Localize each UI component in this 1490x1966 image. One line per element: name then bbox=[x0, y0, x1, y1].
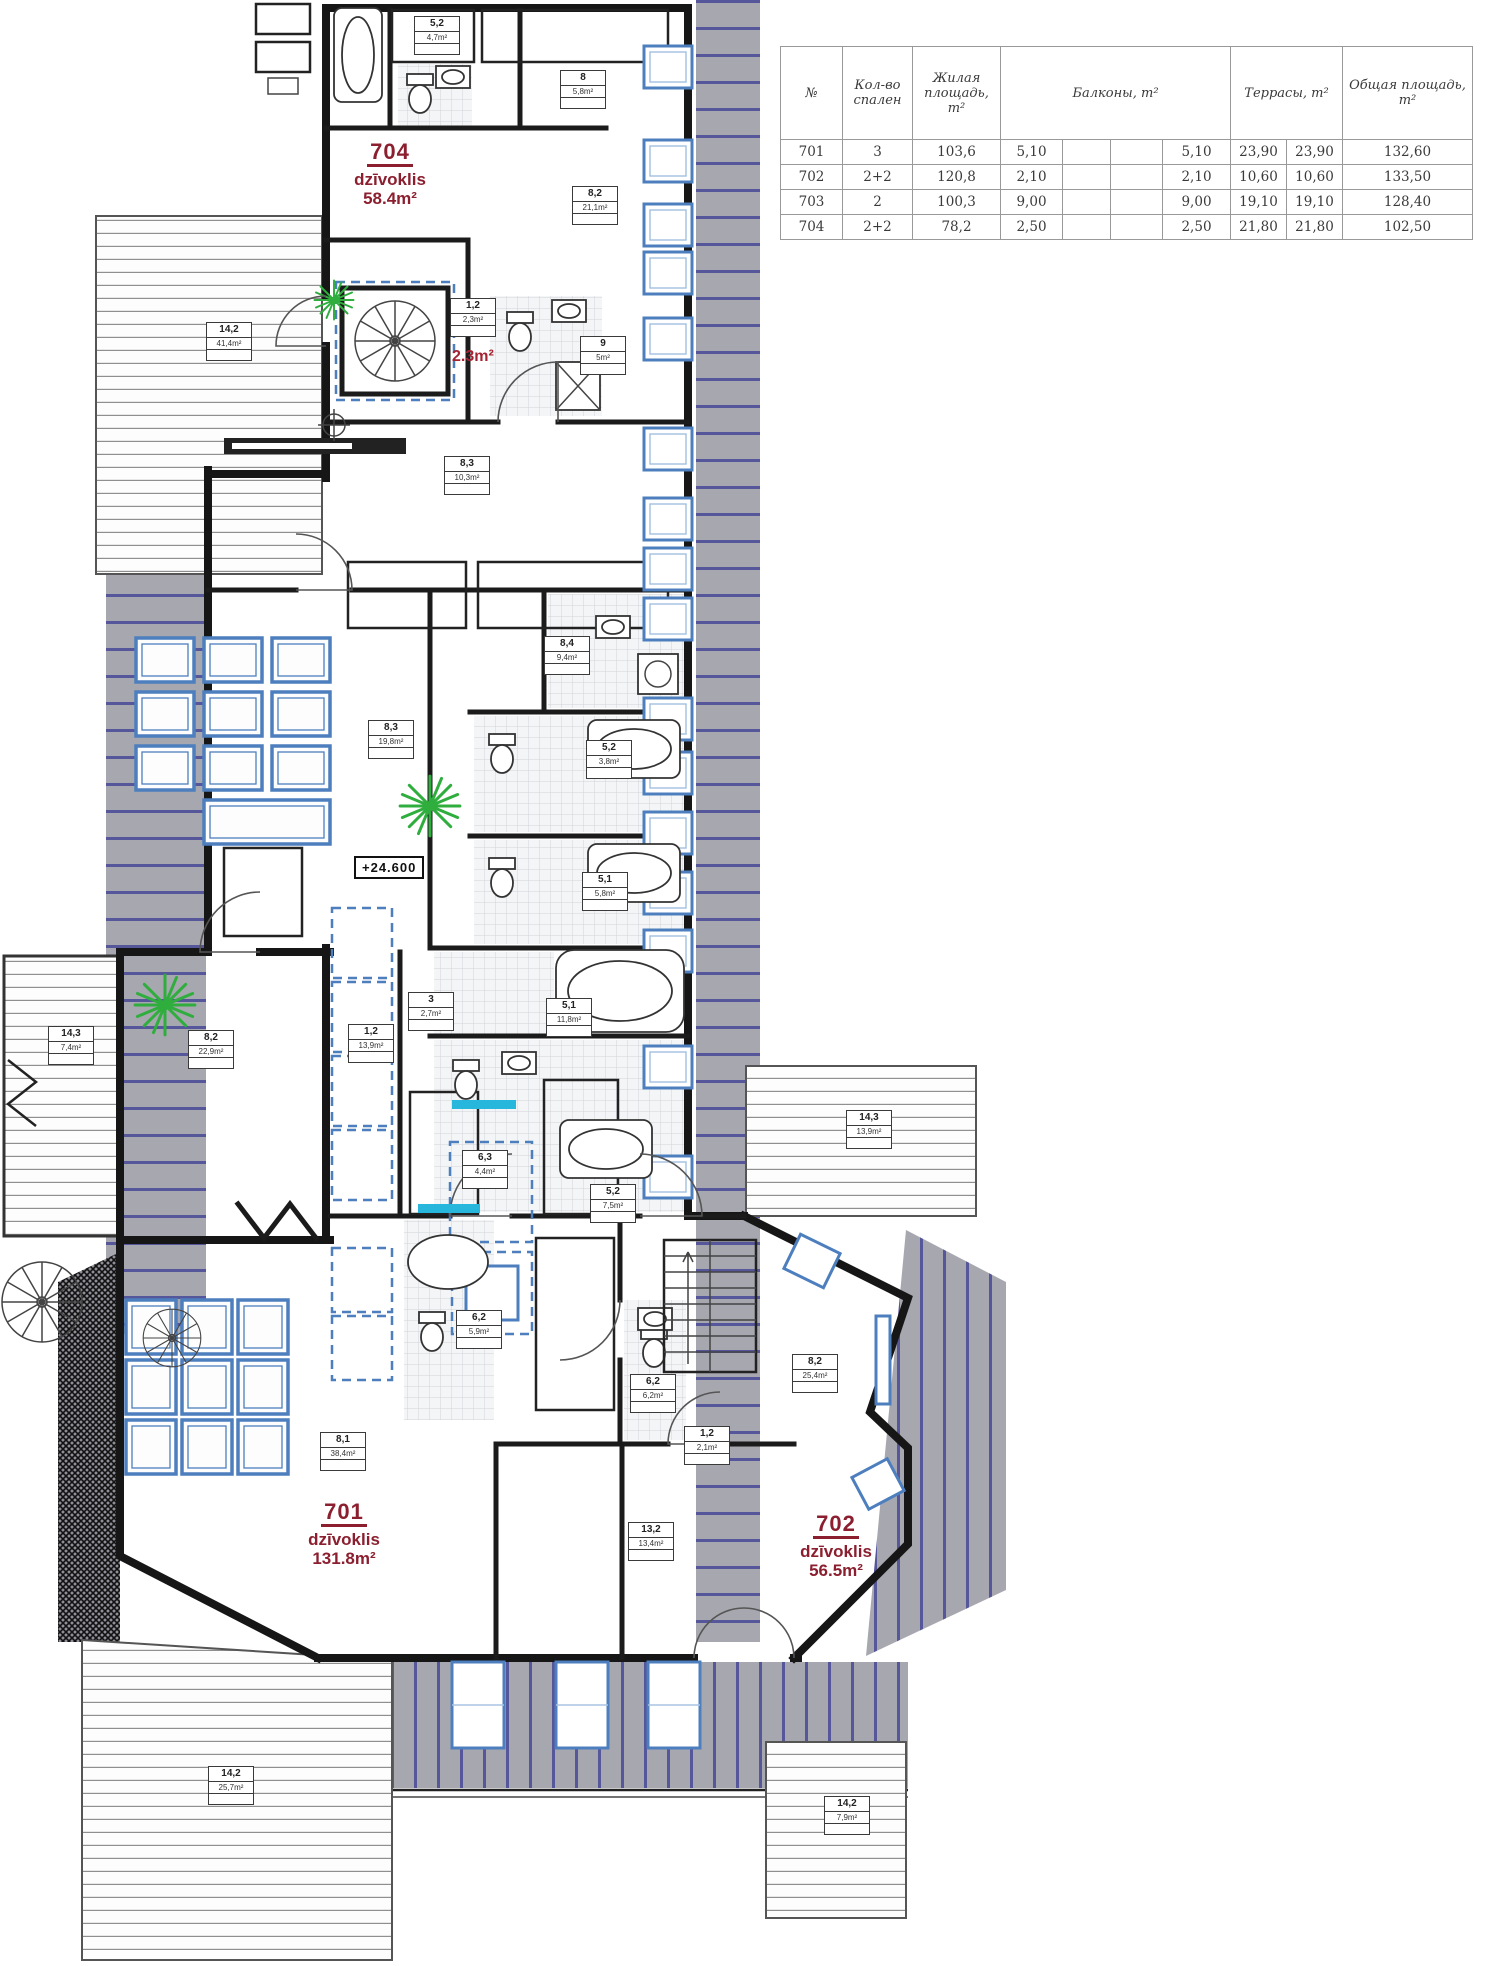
cell-bedrooms: 2+2 bbox=[843, 215, 913, 240]
sink-icon bbox=[436, 66, 470, 88]
room-label-8-3-5: 8,310,3m² bbox=[444, 456, 490, 495]
room-label-5-1-10: 5,15,8m² bbox=[582, 872, 628, 911]
area-table: № Кол-во спален Жилая площадь, m² Балкон… bbox=[780, 46, 1473, 240]
header-total: Общая площадь, m² bbox=[1343, 47, 1473, 140]
apartment-type: dzīvoklis bbox=[328, 170, 452, 189]
room-label-6-2-19: 6,25,9m² bbox=[456, 1310, 502, 1349]
cell-living: 78,2 bbox=[913, 215, 1001, 240]
oval-tub-icon bbox=[408, 1235, 488, 1289]
apartment-label-704: 704 dzīvoklis 58.4m² bbox=[328, 140, 452, 209]
toilet-icon bbox=[489, 858, 515, 897]
cell-balc2 bbox=[1063, 140, 1111, 165]
apartment-label-701: 701 dzīvoklis 131.8m² bbox=[282, 1500, 406, 1569]
room-label-1-2-12: 1,213,9m² bbox=[348, 1024, 394, 1063]
room-label-9-4: 95m² bbox=[580, 336, 626, 375]
cyan-marker bbox=[452, 1100, 516, 1109]
room-label-6-2-21: 6,26,2m² bbox=[630, 1374, 676, 1413]
cell-terr2: 10,60 bbox=[1287, 165, 1343, 190]
spiral-stair-small bbox=[143, 1309, 201, 1367]
room-label-14-2-25: 14,225,7m² bbox=[208, 1766, 254, 1805]
toilet-icon bbox=[419, 1312, 445, 1351]
page: 704 dzīvoklis 58.4m² 701 dzīvoklis 131.8… bbox=[0, 0, 1490, 1966]
room-label-8-2-20: 8,225,4m² bbox=[792, 1354, 838, 1393]
room-label-1-2-22: 1,22,1m² bbox=[684, 1426, 730, 1465]
cell-balc1: 2,10 bbox=[1001, 165, 1063, 190]
cell-terr1: 10,60 bbox=[1231, 165, 1287, 190]
apartment-type: dzīvoklis bbox=[772, 1542, 900, 1561]
cell-terr2: 23,90 bbox=[1287, 140, 1343, 165]
apartment-area: 56.5m² bbox=[772, 1561, 900, 1581]
cell-total: 128,40 bbox=[1343, 190, 1473, 215]
cell-living: 120,8 bbox=[913, 165, 1001, 190]
bathtub-icon bbox=[560, 1120, 652, 1178]
sink-icon bbox=[638, 1308, 672, 1330]
cell-bedrooms: 2 bbox=[843, 190, 913, 215]
hatched-edge bbox=[58, 1252, 120, 1642]
cell-balc1: 5,10 bbox=[1001, 140, 1063, 165]
cell-balc1: 2,50 bbox=[1001, 215, 1063, 240]
apartment-type: dzīvoklis bbox=[282, 1530, 406, 1549]
cell-balc1: 9,00 bbox=[1001, 190, 1063, 215]
room-label-8-1: 85,8m² bbox=[560, 70, 606, 109]
room-label-5-1-15: 5,111,8m² bbox=[546, 998, 592, 1037]
cell-living: 100,3 bbox=[913, 190, 1001, 215]
cell-balc-total: 5,10 bbox=[1163, 140, 1231, 165]
roof-strip-right bbox=[696, 0, 760, 1642]
elevation-marker: +24.600 bbox=[354, 856, 424, 879]
room-label-6-3-16: 6,34,4m² bbox=[462, 1150, 508, 1189]
floor-plan-drawing bbox=[0, 0, 1012, 1966]
spiral-stair-top bbox=[355, 301, 435, 381]
table-row-703: 703 2 100,3 9,00 9,00 19,10 19,10 128,40 bbox=[781, 190, 1473, 215]
table-row-702: 702 2+2 120,8 2,10 2,10 10,60 10,60 133,… bbox=[781, 165, 1473, 190]
room-label-14-2-26: 14,27,9m² bbox=[824, 1796, 870, 1835]
room-label-8-3-8: 8,319,8m² bbox=[368, 720, 414, 759]
table-row-701: 701 3 103,6 5,10 5,10 23,90 23,90 132,60 bbox=[781, 140, 1473, 165]
apartment-number: 702 bbox=[813, 1512, 859, 1539]
cell-balc-total: 9,00 bbox=[1163, 190, 1231, 215]
cell-balc3 bbox=[1111, 165, 1163, 190]
floor-plan: 704 dzīvoklis 58.4m² 701 dzīvoklis 131.8… bbox=[0, 0, 1012, 1966]
room-label-8-2-13: 8,222,9m² bbox=[188, 1030, 234, 1069]
apartment-area: 58.4m² bbox=[328, 189, 452, 209]
toilet-icon bbox=[489, 734, 515, 773]
room-label-5-2-0: 5,24,7m² bbox=[414, 16, 460, 55]
cell-num: 702 bbox=[781, 165, 843, 190]
room-label-14-3-14: 14,37,4m² bbox=[48, 1026, 94, 1065]
stair-area-note: 2.3m² bbox=[452, 348, 494, 366]
room-label-8-4-7: 8,49,4m² bbox=[544, 636, 590, 675]
spiral-stair-balcony bbox=[2, 1262, 82, 1342]
sink-icon bbox=[502, 1052, 536, 1074]
cell-balc3 bbox=[1111, 140, 1163, 165]
apartment-area: 131.8m² bbox=[282, 1549, 406, 1569]
cell-bedrooms: 2+2 bbox=[843, 165, 913, 190]
header-num: № bbox=[781, 47, 843, 140]
cell-terr1: 19,10 bbox=[1231, 190, 1287, 215]
roof-bay-right bbox=[866, 1230, 1006, 1656]
room-label-14-3-18: 14,313,9m² bbox=[846, 1110, 892, 1149]
cell-bedrooms: 3 bbox=[843, 140, 913, 165]
sink-icon bbox=[596, 616, 630, 638]
cell-balc2 bbox=[1063, 190, 1111, 215]
plant-icon bbox=[135, 975, 195, 1035]
table-header-row: № Кол-во спален Жилая площадь, m² Балкон… bbox=[781, 47, 1473, 140]
room-label-8-2-2: 8,221,1m² bbox=[572, 186, 618, 225]
cell-balc3 bbox=[1111, 215, 1163, 240]
cyan-marker bbox=[418, 1204, 480, 1213]
cell-num: 703 bbox=[781, 190, 843, 215]
plant-icon bbox=[315, 281, 354, 320]
cell-terr2: 19,10 bbox=[1287, 190, 1343, 215]
room-label-3-11: 32,7m² bbox=[408, 992, 454, 1031]
cell-total: 133,50 bbox=[1343, 165, 1473, 190]
cell-terr1: 23,90 bbox=[1231, 140, 1287, 165]
skylight-grid-lower bbox=[126, 1300, 288, 1474]
room-label-5-2-9: 5,23,8m² bbox=[586, 740, 632, 779]
room-label-13-2-24: 13,213,4m² bbox=[628, 1522, 674, 1561]
cell-balc2 bbox=[1063, 165, 1111, 190]
room-label-14-2-6: 14,241,4m² bbox=[206, 322, 252, 361]
cell-living: 103,6 bbox=[913, 140, 1001, 165]
cell-terr2: 21,80 bbox=[1287, 215, 1343, 240]
toilet-icon bbox=[453, 1060, 479, 1099]
cell-num: 704 bbox=[781, 215, 843, 240]
room-label-5-2-17: 5,27,5m² bbox=[590, 1184, 636, 1223]
room-label-8-1-23: 8,138,4m² bbox=[320, 1432, 366, 1471]
cell-terr1: 21,80 bbox=[1231, 215, 1287, 240]
header-living: Жилая площадь, m² bbox=[913, 47, 1001, 140]
header-balconies: Балконы, m² bbox=[1001, 47, 1231, 140]
cell-balc3 bbox=[1111, 190, 1163, 215]
terrace-left bbox=[4, 956, 118, 1236]
cell-balc-total: 2,10 bbox=[1163, 165, 1231, 190]
table-row-704: 704 2+2 78,2 2,50 2,50 21,80 21,80 102,5… bbox=[781, 215, 1473, 240]
header-terraces: Террасы, m² bbox=[1231, 47, 1343, 140]
cell-total: 132,60 bbox=[1343, 140, 1473, 165]
cell-balc-total: 2,50 bbox=[1163, 215, 1231, 240]
toilet-icon bbox=[407, 74, 433, 113]
apartment-number: 704 bbox=[367, 140, 413, 167]
apartment-number: 701 bbox=[321, 1500, 367, 1527]
toilet-icon bbox=[507, 312, 533, 351]
zigzag-symbol bbox=[238, 1204, 316, 1238]
cell-balc2 bbox=[1063, 215, 1111, 240]
cell-total: 102,50 bbox=[1343, 215, 1473, 240]
cell-num: 701 bbox=[781, 140, 843, 165]
sink-icon bbox=[552, 300, 586, 322]
room-label-1-2-3: 1,22,3m² bbox=[450, 298, 496, 337]
header-bedrooms: Кол-во спален bbox=[843, 47, 913, 140]
apartment-label-702: 702 dzīvoklis 56.5m² bbox=[772, 1512, 900, 1581]
plant-icon bbox=[400, 776, 460, 836]
